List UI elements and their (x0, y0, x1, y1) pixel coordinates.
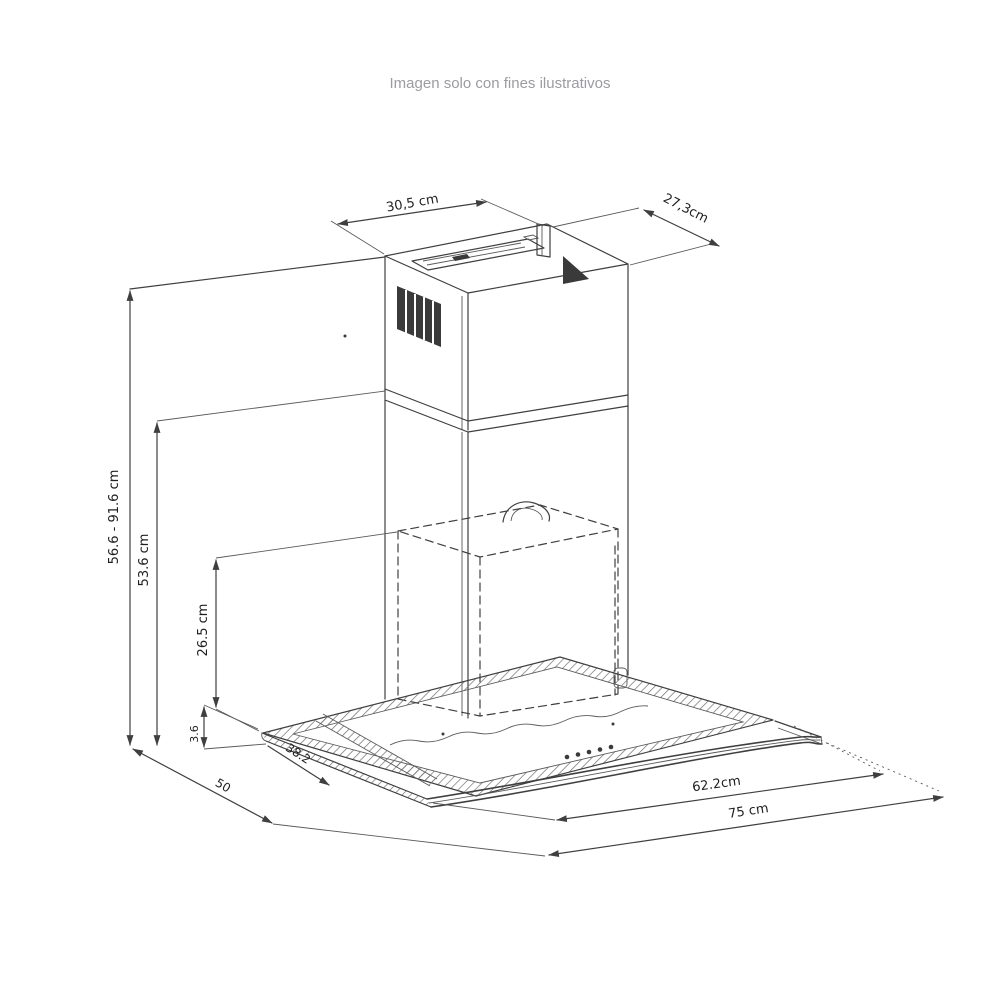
dimension-duct-top-depth: 27,3cm (553, 191, 719, 265)
dim-label-total-width: 75 cm (727, 801, 769, 822)
glass-body-junction (390, 706, 648, 745)
top-tab-bracket (537, 224, 550, 257)
dimension-body-height: 26.5 cm (196, 532, 397, 731)
dim-label-duct-top-width: 30,5 cm (385, 192, 440, 216)
mounting-bracket (412, 235, 544, 270)
wall-reference (130, 257, 385, 289)
speck (344, 335, 347, 338)
hood-body-frame (263, 657, 773, 796)
vent-grille (397, 286, 441, 347)
dim-label-glass-edge: 3.6 (188, 725, 201, 743)
chimney-upper-section (344, 224, 629, 430)
range-hood-diagram: Imagen solo con fines ilustrativos (0, 0, 1000, 1000)
chimney-top-face (385, 224, 628, 293)
chimney-seam (385, 389, 628, 432)
technical-drawing-canvas: Imagen solo con fines ilustrativos (0, 0, 1000, 1000)
duct-handle (503, 502, 549, 522)
dim-label-chimney-height: 53.6 cm (137, 534, 152, 587)
dim-label-total-height: 56.6 - 91.6 cm (107, 470, 122, 565)
dimension-chimney-height: 53.6 cm (137, 391, 385, 745)
shadow-triangle (563, 256, 589, 284)
dimension-glass-edge: 3.6 (188, 705, 266, 749)
dimension-total-height: 56.6 - 91.6 cm (107, 291, 130, 745)
dim-label-body-height: 26.5 cm (196, 604, 211, 657)
dim-label-glass-width: 62.2cm (691, 774, 741, 796)
glass-front-edge (427, 737, 821, 799)
dim-label-base-depth: 50 (213, 776, 233, 796)
illustrative-caption: Imagen solo con fines ilustrativos (390, 75, 611, 92)
motor-housing-hidden (398, 502, 618, 716)
